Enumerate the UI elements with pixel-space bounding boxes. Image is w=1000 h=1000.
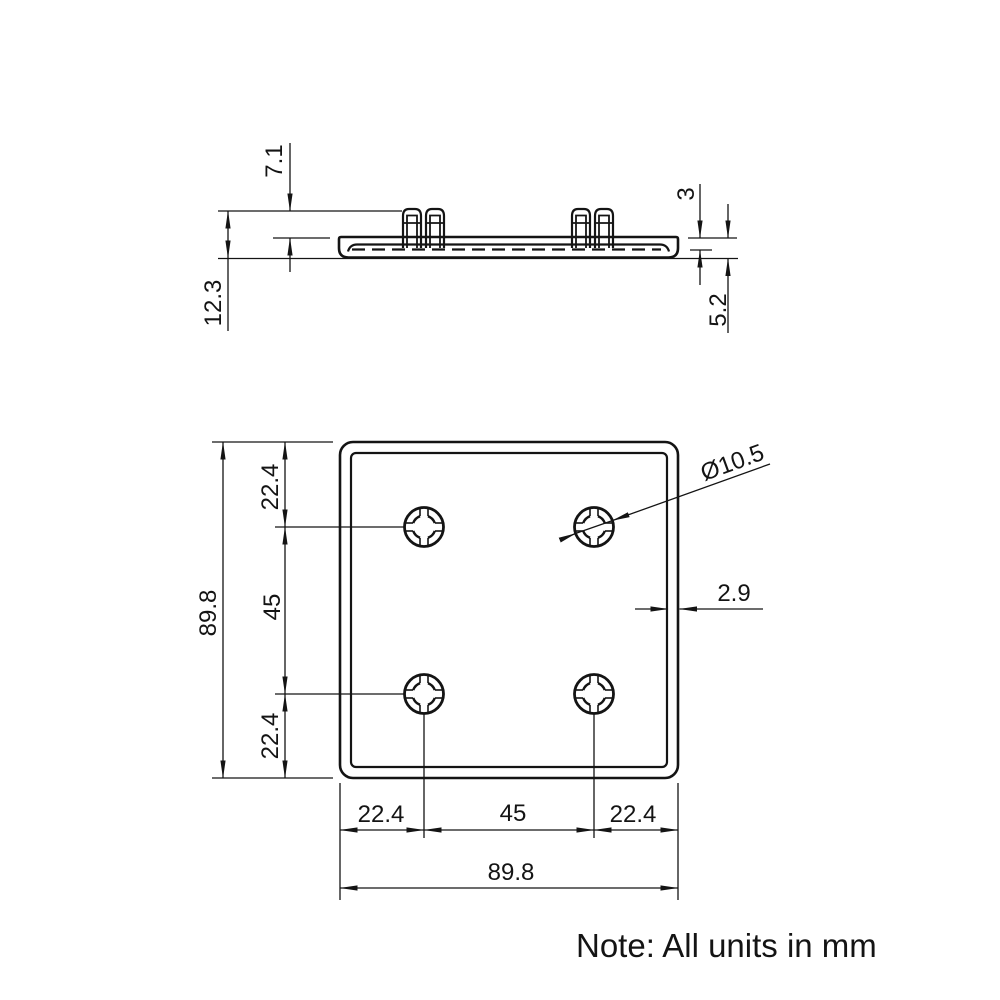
dim-label-wall-thickness: 2.9 [717,580,750,607]
clip-tab [426,209,444,248]
clip-tab [403,209,421,248]
leader-line [612,464,770,521]
dimension-wall-thickness: 2.9 [635,580,763,609]
dim-label-col-pitch: 45 [500,800,527,827]
dim-label-cap-thickness: 5.2 [705,293,732,326]
cap-body-outline [339,237,678,258]
dimension-clip-height: 7.1 [261,143,290,272]
dim-label-row-pitch: 45 [259,594,286,621]
dim-label-top-offset: 22.4 [257,464,284,511]
mounting-hole [405,508,444,547]
dimension-face-thickness: 3 [673,184,700,285]
leader-line [560,533,576,540]
clip-tab [572,209,590,248]
dim-label-bottom-offset: 22.4 [257,713,284,760]
dimension-vertical-offsets: 22.4 45 22.4 [257,442,286,778]
dim-label-total-height: 12.3 [200,280,227,327]
clip-tab-inner [576,216,586,249]
dim-label-width-total: 89.8 [488,859,535,886]
dim-label-clip-height: 7.1 [261,144,288,177]
technical-drawing: 7.1 12.3 3 5.2 [0,0,1000,1000]
plate-outline [340,442,678,778]
front-view: 89.8 22.4 45 22.4 22.4 45 22.4 89.8 [195,439,770,900]
clip-tab-inner [430,216,440,249]
side-view: 7.1 12.3 3 5.2 [200,143,738,333]
dim-label-height-total: 89.8 [195,590,222,637]
dimension-horizontal-offsets: 22.4 45 22.4 [340,800,678,830]
dim-label-right-offset: 22.4 [610,801,657,828]
plate-inner-edge [351,453,667,767]
clip-tab-inner [407,216,417,249]
clip-tab-inner [599,216,609,249]
drawing-canvas: 7.1 12.3 3 5.2 [0,0,1000,1000]
dimension-total-height: 12.3 [200,211,228,331]
dimension-cap-thickness: 5.2 [705,204,732,333]
mounting-hole [575,675,614,714]
dimension-width-total: 89.8 [340,859,678,888]
dimension-height-total: 89.8 [195,442,223,778]
dim-label-left-offset: 22.4 [358,801,405,828]
mounting-hole [405,675,444,714]
units-note: Note: All units in mm [576,927,877,964]
clip-tab [595,209,613,248]
dim-label-face-thickness: 3 [673,187,700,200]
dim-label-hole-diameter: Ø10.5 [697,439,768,487]
